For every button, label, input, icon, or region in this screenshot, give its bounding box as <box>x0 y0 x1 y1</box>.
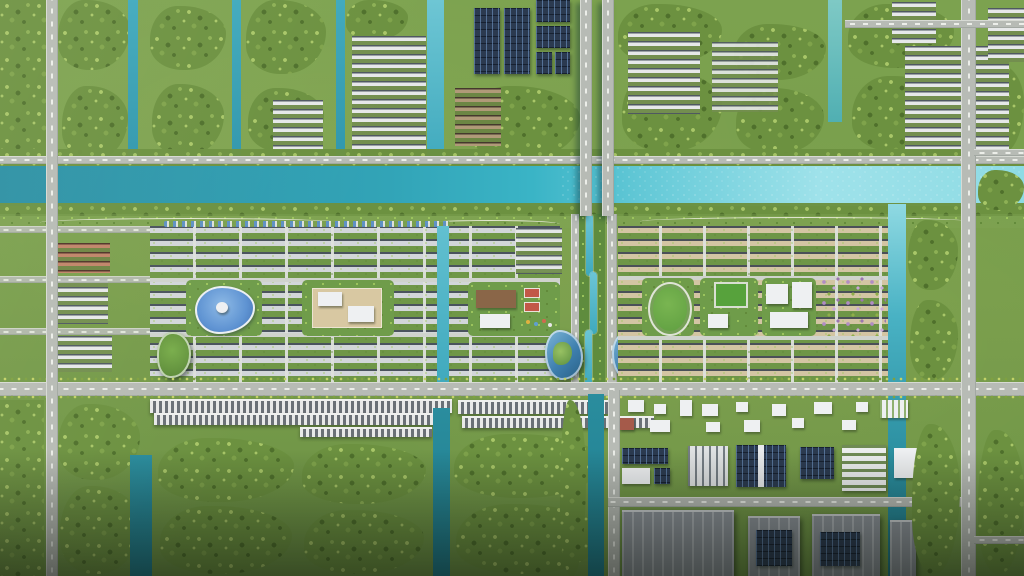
playground-dots <box>526 320 530 324</box>
irrigation-canal <box>232 0 241 166</box>
forest-patch <box>0 400 44 576</box>
office-building <box>650 420 670 432</box>
office-building <box>680 400 692 416</box>
village-cluster <box>628 32 700 114</box>
solar-panel-array <box>474 8 500 74</box>
twin-bridge-west <box>580 0 592 216</box>
school-building <box>792 282 812 308</box>
school-building <box>766 284 788 304</box>
shophouse-strip <box>154 413 438 425</box>
warehouse-grey <box>622 510 734 576</box>
sports-court <box>524 302 540 312</box>
feeder-road <box>0 226 150 233</box>
industrial-road-south <box>608 497 964 507</box>
sports-field <box>714 282 748 308</box>
village-cluster <box>712 42 778 112</box>
sports-field-block <box>700 278 758 336</box>
twin-bridge-east <box>602 0 614 216</box>
tower-roof-garden <box>553 342 572 365</box>
office-building <box>856 402 868 412</box>
office-building <box>814 402 832 414</box>
school-building <box>480 314 510 328</box>
office-building <box>654 404 666 414</box>
school-building <box>476 290 516 308</box>
clubhouse-park <box>302 280 394 336</box>
sports-court <box>524 288 540 298</box>
office-building <box>628 400 644 412</box>
village-cluster <box>988 8 1024 62</box>
office-building <box>842 420 856 430</box>
feeder-road <box>0 276 150 283</box>
south-canal <box>130 455 152 576</box>
irrigation-canal <box>828 0 842 122</box>
office-building <box>792 418 804 428</box>
west-block-canal <box>437 226 449 386</box>
forest-patch <box>0 0 46 162</box>
industrial-road-west <box>608 390 620 576</box>
office-building <box>702 404 718 416</box>
warehouse-solar-roof <box>800 447 834 479</box>
warehouse-solar-roof <box>654 468 670 484</box>
shophouse-edge-row <box>164 221 450 227</box>
school-building <box>770 312 808 328</box>
office-building <box>744 420 760 432</box>
shophouse-strip <box>150 399 452 413</box>
office-building <box>706 422 720 432</box>
warehouse-row-roof <box>842 445 886 491</box>
village-cluster <box>455 88 501 146</box>
east-spur-road <box>974 149 1024 156</box>
flowering-grove <box>818 276 886 336</box>
warehouse-white <box>622 468 650 484</box>
masterplan-aerial-render <box>0 0 1024 576</box>
northeast-road <box>845 20 1024 28</box>
office-building <box>772 404 786 416</box>
southeast-spur-road <box>974 536 1024 544</box>
clubhouse-building <box>348 306 374 322</box>
field-pavilion <box>708 314 728 328</box>
lagoon-pool-park <box>186 280 262 336</box>
east-arterial-road <box>961 0 976 576</box>
corridor-school-cluster <box>516 228 562 274</box>
solar-panel-array <box>536 0 570 22</box>
school-east-campus <box>762 278 816 336</box>
sports-park <box>518 282 560 334</box>
south-canal <box>433 408 450 576</box>
river-north-road <box>0 156 1024 164</box>
village-cluster <box>58 278 108 324</box>
irrigation-canal <box>336 0 345 166</box>
warehouse-solar-roof <box>756 530 792 566</box>
canal-greenway <box>579 214 605 386</box>
solar-panel-array <box>536 26 570 48</box>
irrigation-canal <box>427 0 444 166</box>
oval-park-block <box>642 278 694 336</box>
industrial-west-canal <box>588 394 604 576</box>
block-street <box>618 336 888 340</box>
clubhouse-building <box>318 292 342 306</box>
village-cluster <box>58 336 112 372</box>
oval-park <box>648 282 692 336</box>
shophouse-strip <box>458 400 608 414</box>
solar-panel-array <box>555 52 570 74</box>
irrigation-canal <box>128 0 138 166</box>
warehouse-solar-roof <box>820 532 860 566</box>
pool-island-pavilion <box>216 302 228 313</box>
warehouse-solar-roof <box>622 448 668 464</box>
village-cluster <box>352 36 426 152</box>
village-cluster <box>273 100 323 152</box>
office-green-roof <box>880 400 908 418</box>
shophouse-strip <box>300 427 432 437</box>
river-sparkle <box>560 166 1024 206</box>
greenway-stream <box>586 214 593 276</box>
office-building <box>736 402 748 412</box>
west-arterial-road <box>46 0 58 576</box>
solar-panel-array <box>536 52 552 74</box>
warehouse-gable <box>758 445 764 487</box>
solar-panel-array <box>504 8 530 74</box>
warehouse-striped-roof <box>688 446 728 486</box>
village-cluster <box>58 243 110 273</box>
feeder-road <box>0 328 150 335</box>
office-building-red <box>620 418 634 430</box>
greenway-stream <box>590 272 597 334</box>
